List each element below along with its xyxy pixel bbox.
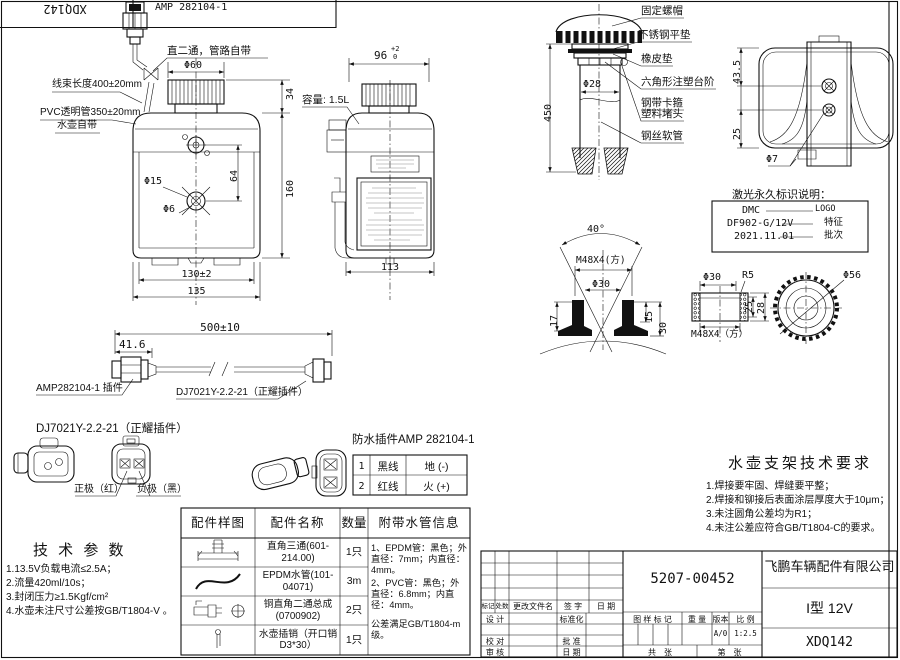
part-name-row4: 水壶插销（开口销 D3*30）: [256, 625, 340, 655]
dim-neck-30: 30: [658, 322, 670, 334]
field-weight: 重 量: [682, 615, 712, 624]
pipe-info-text: 1、EPDM管：黑色；外直径：7mm；内直径：4mm。 2、PVC管：黑色；外直…: [371, 543, 468, 643]
harness-length-label: 线束长度400±20mm: [52, 79, 142, 91]
dim-side-width-tol-lower: 0: [393, 53, 397, 61]
pin2-function: 火 (+): [406, 481, 467, 493]
parts-header-qty: 数量: [340, 508, 368, 538]
rubber-pad-label: 橡皮垫: [641, 53, 673, 65]
pin2-number: 2: [353, 481, 370, 493]
part-qty-row2: 3m: [340, 567, 368, 596]
dim-hole-spacing: 64: [229, 170, 241, 182]
pin1-wire: 黑线: [370, 461, 406, 473]
capacity-label: 容量: 1.5L: [302, 94, 349, 106]
rev-header-count: 处数: [495, 603, 509, 610]
dim-side-depth: 113: [360, 262, 420, 274]
laser-feature-meaning: 特征: [824, 218, 843, 229]
field-review: 审 核: [481, 648, 509, 657]
amp-connector-title: 防水插件AMP 282104-1: [352, 434, 475, 447]
dim-neck-diameter: Φ30: [592, 279, 610, 291]
dj-connector-title: DJ7021Y-2.2-21（正耀插件）: [36, 423, 188, 436]
dim-cable-total: 500±10: [160, 322, 280, 335]
top-view-drawing: [737, 36, 893, 166]
pin2-wire: 红线: [370, 481, 406, 493]
tech-param-4: 4.水壶未注尺寸公差按GB/T1804-V 。: [6, 606, 173, 618]
pipe-info-epdm: 1、EPDM管：黑色；外直径：7mm；内直径：4mm。: [371, 543, 468, 576]
dim-tube-diameter: Φ28: [583, 79, 601, 91]
corner-code-inverted: XDQ142: [20, 1, 110, 15]
dim-cap-radius: R5: [742, 270, 754, 282]
tech-params-title: 技 术 参 数: [33, 542, 127, 559]
company-name: 飞鹏车辆配件有限公司: [762, 560, 897, 575]
neck-section-drawing: [540, 234, 666, 355]
part-name-row3: 铜直角二通总成 (0700902): [256, 596, 340, 625]
dim-neck-17: 17: [549, 315, 561, 327]
drawing-number: XDQ142: [762, 636, 897, 651]
bracket-req-4: 4.未注公差应符合GB/T1804-C的要求。: [706, 523, 880, 535]
tee-label: 直二通，管路自带: [167, 45, 251, 57]
field-design: 设 计: [481, 615, 509, 624]
dim-strainer-length: 450: [543, 104, 555, 122]
laser-batch-meaning: 批次: [824, 231, 843, 242]
laser-feature-value: DF902-G/12V: [727, 218, 793, 230]
dim-neck-angle: 40°: [587, 224, 605, 236]
dim-cap-25: 25: [744, 301, 756, 313]
dim-neck-15: 15: [644, 311, 656, 323]
dim-bolt-hole: Φ7: [766, 154, 778, 166]
pin-icon: [216, 630, 221, 649]
cable-left-plug-label: AMP282104-1 插件: [36, 383, 123, 395]
dim-width-inner: 130±2: [164, 269, 229, 281]
dim-cap-outer-diameter: Φ56: [843, 270, 861, 282]
dim-cap-28: 28: [756, 302, 768, 314]
tech-param-2: 2.流量420ml/10s；: [6, 578, 90, 590]
laser-logo-value: DMC: [742, 205, 760, 217]
pipe-info-tolerance: 公差满足GB/T1804-m级。: [371, 619, 468, 641]
hose-icon: [196, 574, 240, 589]
dim-side-width-tol-upper: +2: [391, 45, 399, 53]
field-standardization: 标准化: [557, 615, 586, 624]
washer-label: 不锈钢平垫: [638, 29, 691, 41]
laser-batch-value: 2021.11.01: [734, 231, 794, 243]
version-value: A/0: [712, 630, 729, 639]
hex-step-label: 六角形注塑台阶: [641, 76, 715, 88]
bracket-requirements-title: 水壶支架技术要求: [728, 455, 872, 472]
parts-header-pipe-info: 附带水管信息: [368, 508, 470, 538]
dim-body-height: 160: [285, 180, 297, 198]
front-view-drawing: [40, 2, 290, 305]
part-number: 5207-00452: [623, 571, 762, 587]
dim-neck-thread: M48X4(方): [576, 256, 626, 267]
dim-bracket-top: 43.5: [732, 60, 744, 84]
dim-hole-6: Φ6: [163, 204, 175, 216]
kettle-own-label: 水壶自带: [57, 120, 97, 132]
field-approve: 批 准: [557, 637, 586, 646]
field-drawing-mark: 图 样 标 记: [623, 615, 682, 624]
bracket-req-3: 3.未注圆角公差均为R1；: [706, 509, 817, 521]
rev-header-signature: 签 字: [557, 602, 589, 611]
dim-hole-15: Φ15: [144, 176, 162, 188]
model-name: I型 12V: [762, 600, 897, 616]
parts-header-name: 配件名称: [255, 508, 340, 538]
fixing-nut-label: 固定螺帽: [641, 5, 683, 17]
part-qty-row4: 1只: [340, 625, 368, 655]
dim-cap-thread: M48X4（方）: [691, 330, 748, 341]
pin1-number: 1: [353, 461, 370, 473]
part-name-row2: EPDM水管(101-04071): [256, 567, 340, 596]
bracket-req-1: 1.焊接要牢固、焊缝要平整；: [706, 481, 834, 493]
wire-hose-label: 钢丝软管: [641, 130, 683, 142]
pvc-tube-label: PVC透明管350±20mm: [40, 107, 141, 119]
pipe-info-pvc: 2、PVC管：黑色；外直径：6.8mm；内直径：4mm。: [371, 578, 468, 611]
dim-bracket-bottom: 25: [732, 128, 744, 140]
scale-value: 1:2.5: [729, 630, 762, 639]
laser-marking-title: 激光永久标识说明：: [732, 189, 831, 202]
plug-label: 塑料堵头: [641, 108, 683, 120]
negative-terminal-label: 负极（黑）: [137, 484, 187, 496]
tee-fitting-icon: [198, 540, 238, 561]
positive-terminal-label: 正极（红）: [74, 484, 124, 496]
amp-connector-label: AMP 282104-1: [155, 2, 227, 14]
dim-side-width: 96: [374, 50, 387, 63]
rev-header-filename: 更改文件名: [509, 602, 557, 611]
part-qty-row1: 1只: [340, 538, 368, 567]
pin1-function: 地 (-): [406, 461, 467, 473]
dim-connector-length: 41.6: [119, 339, 146, 352]
part-name-row1: 直角三通(601-214.00): [256, 538, 340, 567]
parts-header-sample: 配件样图: [181, 508, 255, 538]
rev-header-mark: 标记: [481, 603, 495, 610]
tech-param-1: 1.13.5V负载电流≤2.5A；: [6, 564, 117, 576]
field-scale: 比 例: [729, 615, 762, 624]
bracket-req-2: 2.焊接和铆接后表面涂层厚度大于10μm；: [706, 495, 890, 507]
dim-width-outer: 135: [164, 286, 229, 298]
tech-param-3: 3.封闭压力≥1.5Kgf/cm²: [6, 592, 108, 604]
elbow-fitting-icon: [194, 601, 245, 618]
dim-cap-diameter: Φ60: [184, 60, 202, 72]
field-date: 日 期: [557, 648, 586, 657]
field-total-sheets: 共 张: [623, 648, 697, 657]
engineering-drawing-sheet: XDQ142 AMP 282104-1 直二通，管路自带 线束长度400±20m…: [0, 0, 900, 660]
field-sheet-number: 第 张: [697, 648, 762, 657]
dim-cap-height: 34: [285, 88, 297, 100]
laser-logo-meaning: LOGO: [815, 205, 835, 215]
dim-cap-inner-diameter: Φ30: [703, 272, 721, 284]
rev-header-date: 日 期: [589, 602, 623, 611]
field-version: 版本: [712, 615, 729, 624]
field-check: 校 对: [481, 637, 509, 646]
part-qty-row3: 2只: [340, 596, 368, 625]
cap-top-view-drawing: [770, 272, 844, 344]
cable-right-plug-label: DJ7021Y-2.2-21（正耀插件）: [176, 387, 308, 399]
